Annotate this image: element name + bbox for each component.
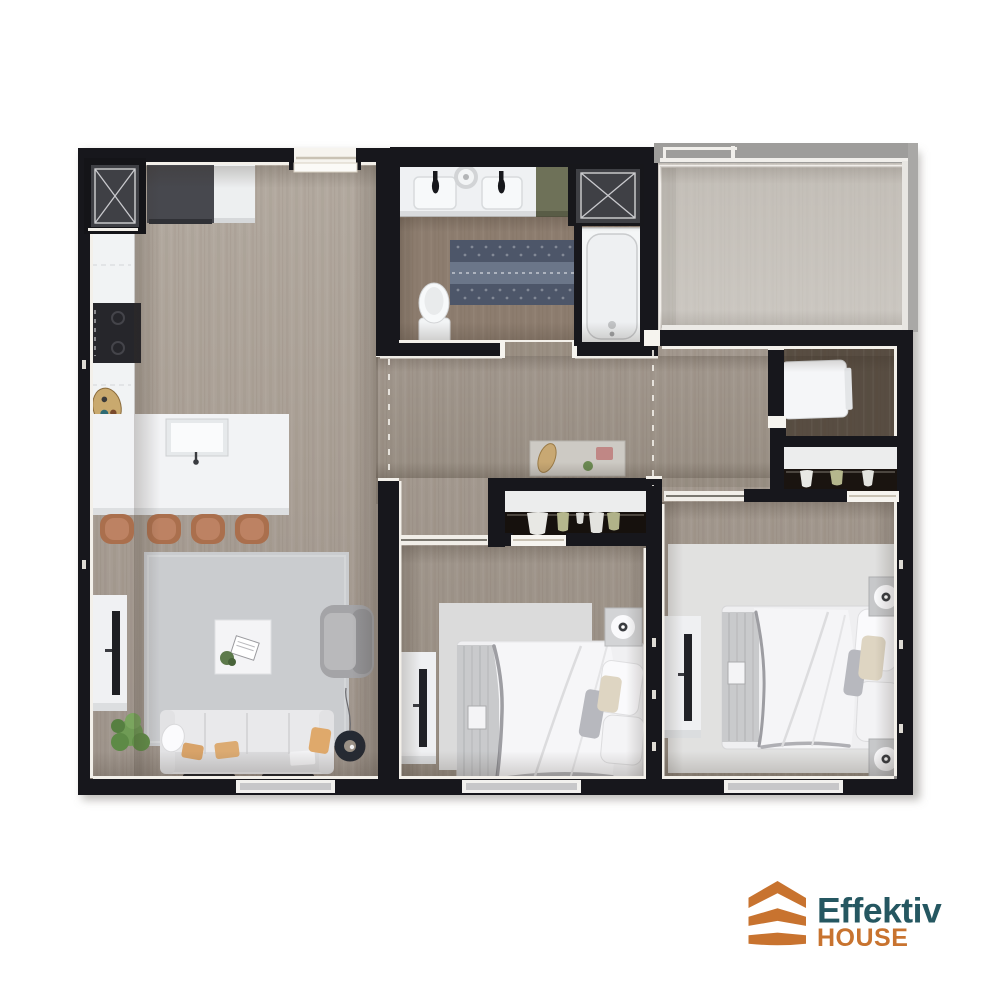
- svg-text:HOUSE: HOUSE: [817, 924, 908, 952]
